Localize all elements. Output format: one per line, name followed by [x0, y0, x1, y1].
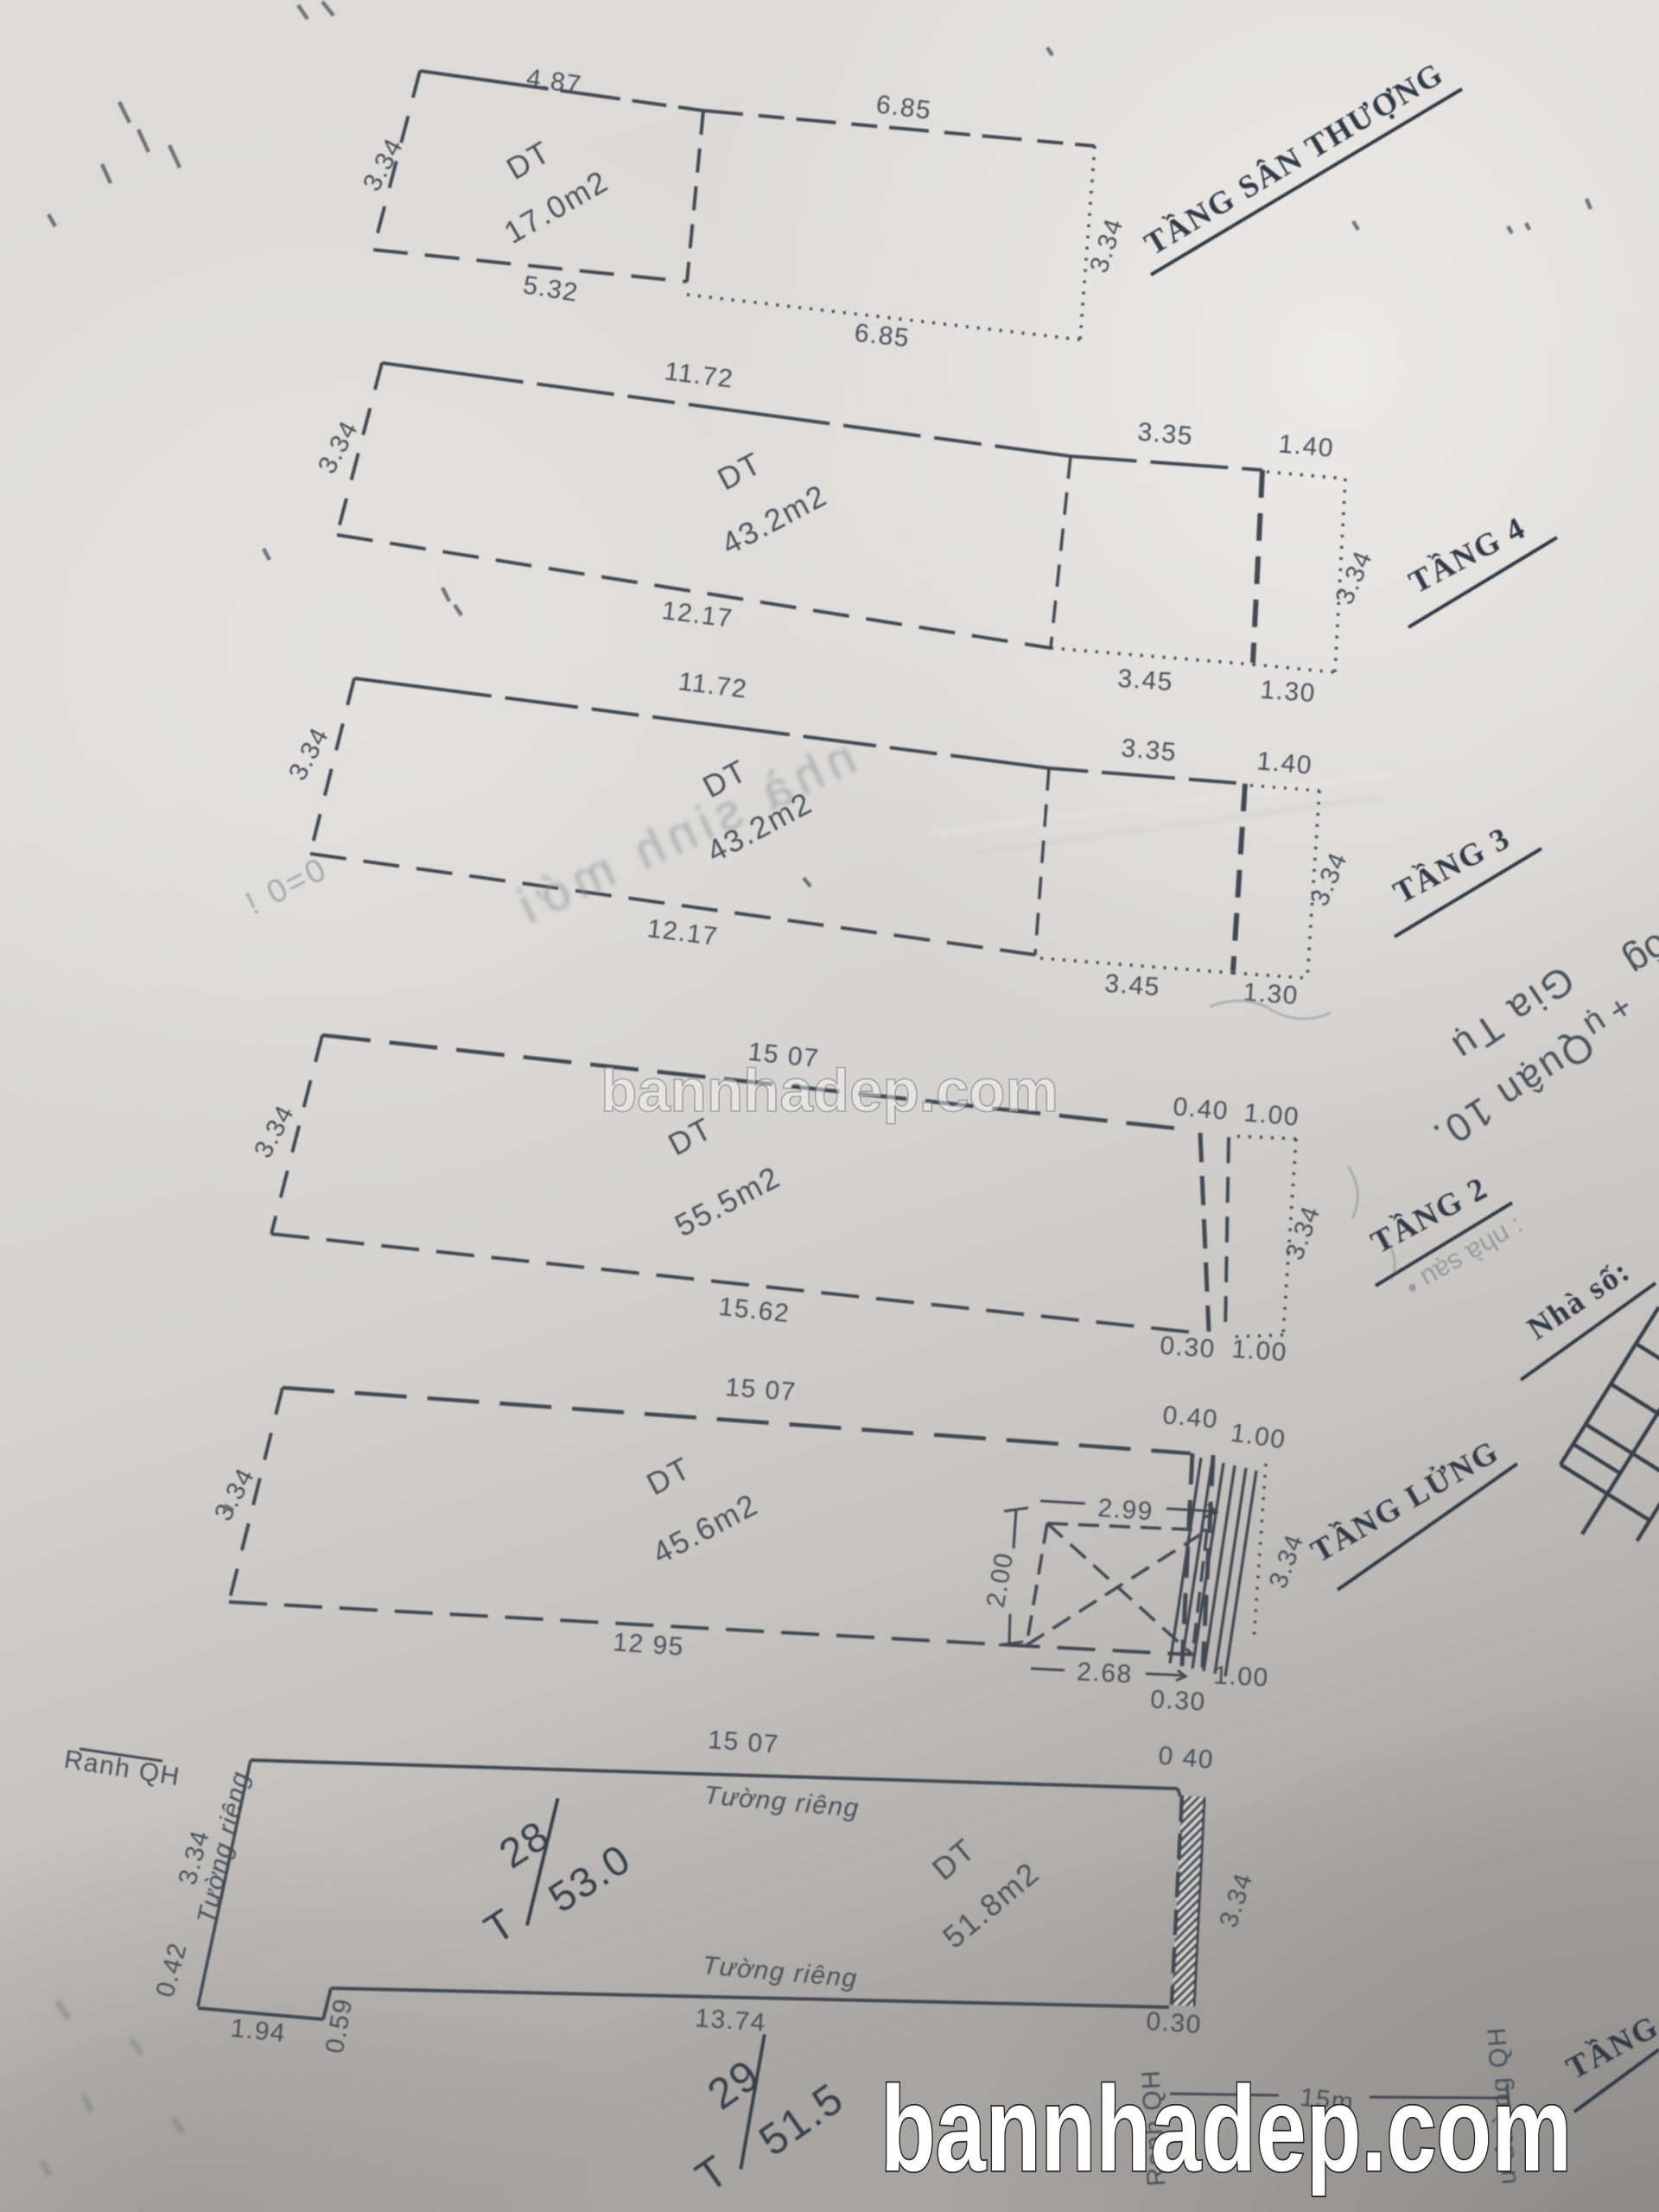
svg-text:1.30: 1.30 — [1242, 978, 1300, 1010]
svg-text:2.68: 2.68 — [1076, 1657, 1133, 1688]
svg-text:15 07: 15 07 — [724, 1373, 798, 1407]
svg-text:13.74: 13.74 — [694, 2004, 767, 2037]
svg-text:bannhadep.com: bannhadep.com — [880, 2061, 1572, 2196]
svg-text:0.30: 0.30 — [1149, 1685, 1206, 1716]
svg-text:0.30: 0.30 — [1159, 1332, 1217, 1363]
svg-text:3.35: 3.35 — [1136, 417, 1194, 450]
svg-text:0 40: 0 40 — [1157, 1741, 1215, 1774]
svg-text:1.94: 1.94 — [229, 2014, 287, 2049]
svg-text:6.85: 6.85 — [853, 319, 911, 353]
svg-text:1.30: 1.30 — [1259, 676, 1317, 708]
svg-text:1.40: 1.40 — [1277, 429, 1335, 462]
svg-text:1.00: 1.00 — [1230, 1335, 1288, 1367]
svg-text:2.99: 2.99 — [1096, 1494, 1154, 1526]
svg-text:15 07: 15 07 — [707, 1726, 780, 1759]
svg-text:0.40: 0.40 — [1172, 1092, 1230, 1125]
svg-text:3.45: 3.45 — [1116, 664, 1174, 696]
svg-text:0.40: 0.40 — [1161, 1401, 1219, 1433]
svg-text:12 95: 12 95 — [612, 1628, 685, 1662]
svg-text:1.00: 1.00 — [1243, 1098, 1300, 1131]
svg-text:1.40: 1.40 — [1255, 747, 1313, 779]
svg-text:3.45: 3.45 — [1103, 969, 1161, 1001]
svg-text:3.35: 3.35 — [1120, 734, 1178, 766]
svg-text:0.30: 0.30 — [1145, 2007, 1203, 2039]
svg-text:bannhadep.com: bannhadep.com — [601, 1057, 1058, 1124]
svg-text:1.00: 1.00 — [1212, 1661, 1269, 1692]
